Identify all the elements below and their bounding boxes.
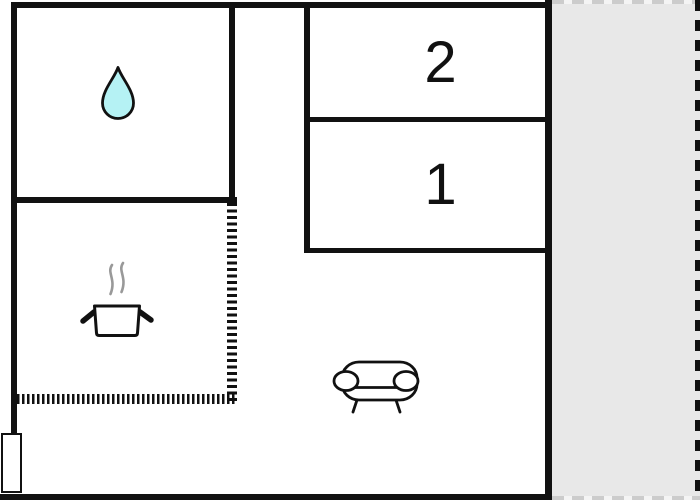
wall-bottom <box>0 494 552 500</box>
kitchen-partition-dashed-horizontal <box>17 394 237 404</box>
wall-bedrooms-bottom <box>304 248 552 253</box>
sofa-leg-right <box>396 400 400 412</box>
wall-bathroom-right <box>229 2 235 203</box>
room-1-label: 1 <box>310 122 545 248</box>
pot-handle-right <box>140 312 151 320</box>
cooking-pot-icon <box>78 258 158 343</box>
kitchen-partition-dashed-vertical <box>227 203 237 404</box>
room-2-label: 2 <box>310 8 545 117</box>
sofa-leg-left <box>353 400 357 412</box>
terrace-edge-right-dashed <box>695 0 700 500</box>
terrace-edge-top-dashed <box>552 0 700 4</box>
pot-body <box>95 306 140 336</box>
door-symbol <box>1 433 22 493</box>
pot-handle-left <box>83 312 94 321</box>
terrace-edge-bottom-dashed <box>552 496 700 500</box>
sofa-icon <box>330 355 425 417</box>
room-2-number: 2 <box>424 34 456 92</box>
floorplan-canvas: 2 1 <box>0 0 700 500</box>
room-1-number: 1 <box>424 156 456 214</box>
wall-bathroom-bottom <box>11 197 237 203</box>
water-drop-icon <box>100 65 136 121</box>
terrace-area <box>552 0 700 500</box>
steam-icon <box>110 265 112 294</box>
wall-left <box>11 2 17 433</box>
steam-icon <box>121 263 123 292</box>
sofa-armrest-right <box>394 372 418 391</box>
sofa-armrest-left <box>334 372 358 391</box>
